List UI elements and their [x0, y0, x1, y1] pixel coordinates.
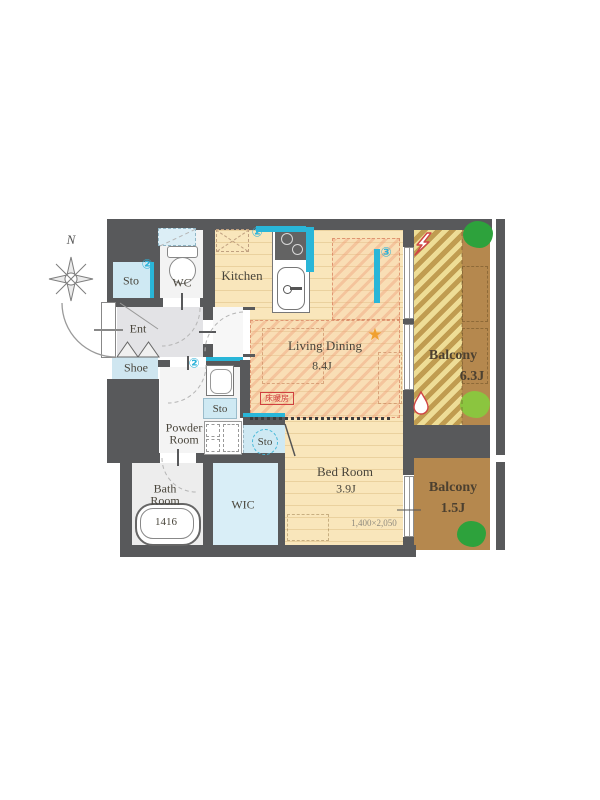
- room-label-powder-2: Room: [169, 433, 198, 448]
- marker-powder: ②: [188, 357, 199, 372]
- room-label-kitchen: Kitchen: [221, 268, 262, 284]
- cabinet-cross: [216, 230, 249, 252]
- shoe-folding-door: [117, 342, 159, 357]
- marker-kitchen: ②: [251, 226, 262, 241]
- room-size-balcony-sub: 1.5J: [441, 501, 466, 517]
- entry-door-arc: [62, 303, 116, 357]
- powder-door-swing: [168, 365, 206, 403]
- room-label-balcony-main: Balcony: [429, 348, 477, 364]
- room-label-wic: WIC: [231, 498, 254, 513]
- living-door-swing: [205, 312, 243, 352]
- room-label-wc: WC: [172, 276, 191, 291]
- room-label-sto-entry: Sto: [123, 274, 139, 289]
- room-size-living: 8.4J: [312, 359, 332, 374]
- wc-cupboard-diagonal: [160, 229, 196, 246]
- room-label-bed: Bed Room: [317, 464, 373, 480]
- room-label-sto-hall: Sto: [213, 403, 228, 415]
- floor-plan: 床暖房: [0, 0, 600, 800]
- compass-icon: [49, 257, 93, 301]
- room-label-living: Living Dining: [288, 338, 362, 354]
- lightning-icon: [415, 233, 431, 255]
- wc-door-swing: [162, 308, 200, 346]
- room-size-balcony-main: 6.3J: [460, 369, 485, 385]
- room-label-shoe: Shoe: [124, 361, 148, 376]
- room-size-bed: 3.9J: [336, 482, 356, 497]
- room-label-bath-2: Room: [150, 494, 179, 509]
- bedroom-door-leaf: [285, 424, 295, 456]
- marker-living: ③: [380, 246, 391, 261]
- room-label-balcony-sub: Balcony: [429, 480, 477, 496]
- marker-sto-entry: ②: [141, 258, 152, 273]
- plan-linework: [0, 0, 600, 800]
- star-icon: ★: [367, 325, 382, 345]
- compass-north-label: N: [67, 232, 76, 248]
- water-drop-icon: [414, 392, 428, 414]
- bed-window-dimension: 1,400×2,050: [351, 518, 397, 528]
- bathtub-size-label: 1416: [155, 516, 177, 528]
- room-label-ent: Ent: [130, 322, 147, 337]
- room-label-sto-closet: Sto: [252, 429, 278, 455]
